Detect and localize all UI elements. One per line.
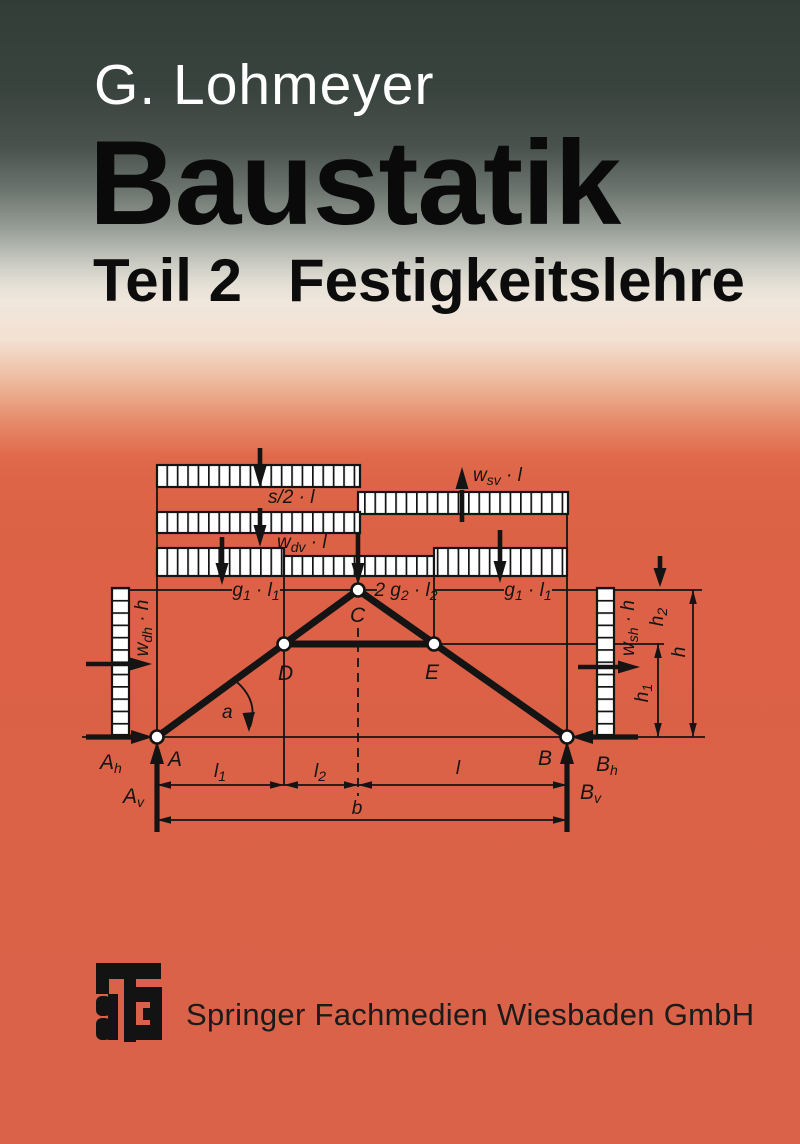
reaction-av-label: Av: [121, 785, 145, 810]
dim-h1-label: h1: [632, 684, 655, 702]
wind-load-bar-right-wall: [597, 588, 614, 735]
dim-l-label: l: [456, 758, 461, 779]
reaction-av-arrow: [150, 741, 164, 832]
logo-g-bottom-bar: [136, 1025, 162, 1040]
node-c-label: C: [350, 604, 366, 627]
node-d: [278, 638, 291, 651]
snow-load-label: s/2 · l: [268, 487, 315, 508]
g1l1-label-right: g1 · l1: [504, 580, 551, 603]
rafter-left-member: [157, 590, 358, 737]
truss-load-diagram: s/2 · l wsv · l wdv · l g1 · l1 2 g2 · l…: [0, 440, 800, 860]
dimension-lines: [157, 590, 697, 824]
publisher-name: Springer Fachmedien Wiesbaden GmbH: [186, 999, 754, 1030]
reaction-bh-label: Bh: [596, 753, 618, 778]
reaction-bv-label: Bv: [580, 781, 602, 806]
wind-dv-label: wdv · l: [277, 532, 327, 555]
node-a: [151, 731, 164, 744]
reaction-bv-arrow: [560, 741, 574, 832]
node-b: [561, 731, 574, 744]
wind-dh-label: wdh · h: [132, 600, 155, 657]
book-cover: G. Lohmeyer Baustatik Teil 2 Festigkeits…: [0, 0, 800, 1144]
logo-b-bump-bottom: [96, 1018, 111, 1040]
h-dimension-line: [689, 590, 697, 737]
angle-alpha-arc-arrow: [232, 678, 255, 732]
logo-t-stem: [124, 979, 136, 1042]
wind-sv-label: wsv · l: [473, 465, 523, 488]
author-name: G. Lohmeyer: [94, 57, 434, 114]
node-e-label: E: [425, 661, 440, 684]
dim-h-label: h: [669, 647, 690, 658]
subtitle-part: Teil 2: [93, 251, 242, 311]
logo-t-hook: [96, 979, 109, 994]
dim-l2-label: l2: [314, 761, 326, 784]
wind-sh-label: wsh · h: [618, 600, 641, 656]
node-d-label: D: [278, 662, 293, 685]
dim-b-label: b: [352, 798, 363, 819]
svg-text:h: h: [669, 647, 690, 658]
node-c: [352, 584, 365, 597]
rafter-right-member: [358, 590, 567, 737]
g2l2-label: 2 g2 · l2: [373, 580, 437, 603]
logo-b-bump-top: [96, 996, 111, 1016]
teubner-logo-icon: [96, 961, 162, 1047]
svg-text:h1: h1: [632, 684, 655, 702]
wind-load-bar-left-wall: [112, 588, 129, 735]
book-title: Baustatik: [89, 123, 620, 243]
node-e: [428, 638, 441, 651]
g1l1-label-left: g1 · l1: [232, 580, 279, 603]
dim-l1-label: l1: [214, 761, 226, 784]
dim-h2-label: h2: [645, 591, 670, 643]
subtitle-topic: Festigkeitslehre: [288, 251, 745, 311]
reaction-ah-label: Ah: [98, 751, 122, 776]
angle-alpha-label: a: [222, 702, 233, 723]
logo-t-crossbar: [96, 963, 161, 979]
svg-text:wsh · h: wsh · h: [618, 600, 641, 656]
node-b-label: B: [538, 747, 552, 770]
node-a-label: A: [166, 748, 182, 771]
svg-text:wdh · h: wdh · h: [132, 600, 155, 657]
subtitle: Teil 2 Festigkeitslehre: [93, 251, 745, 311]
logo-g-tongue: [143, 1008, 162, 1020]
reference-down-arrow-right: [654, 556, 667, 587]
